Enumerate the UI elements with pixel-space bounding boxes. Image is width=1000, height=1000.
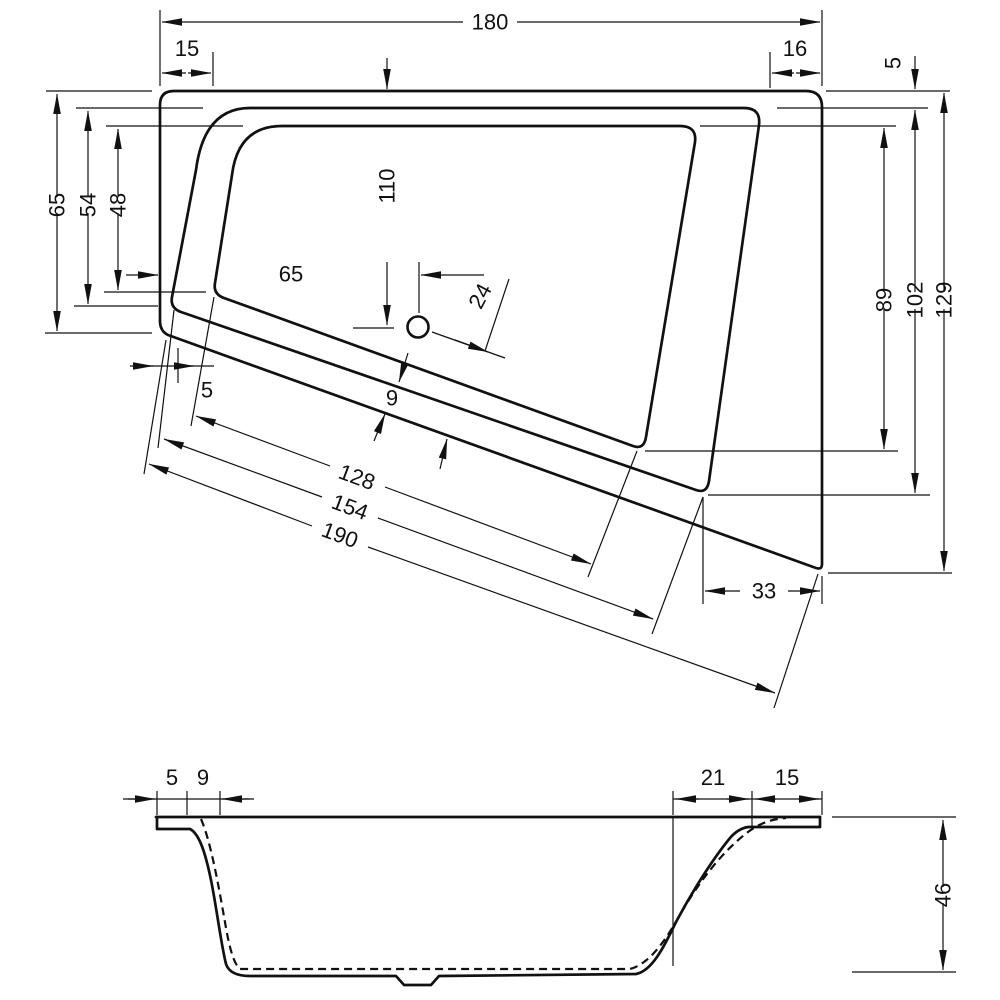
dim-left-rim-label: 15 bbox=[175, 36, 199, 61]
drain-circle bbox=[408, 317, 429, 338]
dim-left-rim: 15 bbox=[162, 36, 213, 86]
dim-right-rim: 16 bbox=[770, 36, 820, 88]
dim-rim-left-label: 5 bbox=[166, 765, 178, 790]
section-body-outline bbox=[157, 817, 820, 985]
dim-left-outer-label: 65 bbox=[45, 193, 70, 217]
dim-section-left: 5 9 bbox=[123, 765, 254, 815]
dim-band-width-label: 9 bbox=[386, 386, 398, 411]
plan-view bbox=[160, 91, 822, 569]
dim-bottom-outer-label: 190 bbox=[318, 517, 361, 553]
section-view bbox=[156, 817, 820, 985]
ext-line bbox=[774, 574, 818, 708]
dim-left-mid-label: 54 bbox=[76, 193, 101, 217]
dim-corner-gap-label: 5 bbox=[201, 378, 213, 403]
dim-right-mid-label: 102 bbox=[903, 282, 928, 319]
bathtub-technical-drawing: 180 15 16 5 65 bbox=[0, 0, 1000, 1000]
dim-edge-right-label: 5 bbox=[881, 57, 906, 69]
dim-section-depth: 46 bbox=[832, 817, 956, 972]
technical-drawing-page: 180 15 16 5 65 bbox=[0, 0, 1000, 1000]
arrow-line bbox=[440, 439, 447, 469]
dim-slope-right-label: 21 bbox=[701, 765, 725, 790]
dim-line bbox=[378, 518, 653, 619]
dim-right-outer: 129 bbox=[828, 93, 957, 573]
arrow-line bbox=[374, 414, 385, 441]
dim-line bbox=[368, 547, 775, 693]
dim-section-right: 21 15 bbox=[673, 765, 822, 966]
dim-depth-label: 46 bbox=[931, 883, 956, 907]
section-dimensions: 5 9 21 15 46 bbox=[123, 765, 956, 972]
dim-right-outer-label: 129 bbox=[932, 282, 957, 319]
dim-rim-right-label: 15 bbox=[775, 765, 799, 790]
section-inner-surface-dashed bbox=[201, 818, 786, 969]
dim-corner-offset-label: 33 bbox=[752, 579, 776, 604]
dim-line bbox=[149, 464, 312, 526]
dim-drain-horizontal-label: 65 bbox=[279, 262, 303, 287]
dim-right-rim-label: 16 bbox=[783, 36, 807, 61]
dim-right-inner-label: 89 bbox=[872, 288, 897, 312]
dim-left-inner-label: 48 bbox=[106, 193, 131, 217]
dim-total-width-label: 180 bbox=[472, 10, 509, 35]
dim-wall-left-label: 9 bbox=[197, 765, 209, 790]
dim-line bbox=[385, 487, 591, 564]
dim-line bbox=[164, 439, 322, 497]
dim-total-width: 180 bbox=[160, 10, 822, 87]
dim-corner-gap: 5 bbox=[130, 348, 214, 403]
dim-drain-vertical-label: 110 bbox=[375, 168, 400, 203]
